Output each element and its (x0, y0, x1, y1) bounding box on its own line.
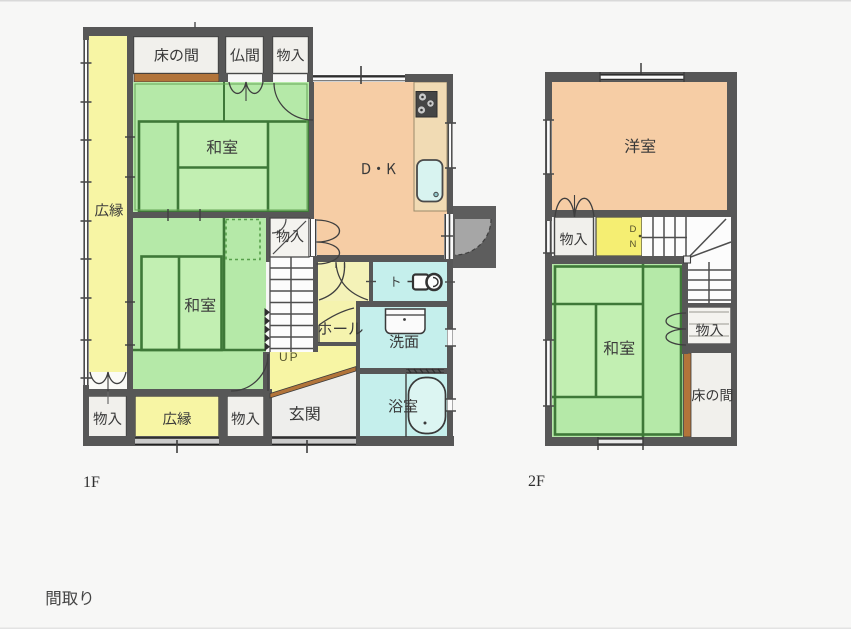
svg-text:N: N (630, 239, 637, 250)
svg-text:2F: 2F (528, 473, 545, 490)
svg-text:D: D (630, 224, 637, 235)
svg-text:1F: 1F (83, 474, 100, 491)
svg-text:UP: UP (279, 350, 300, 364)
